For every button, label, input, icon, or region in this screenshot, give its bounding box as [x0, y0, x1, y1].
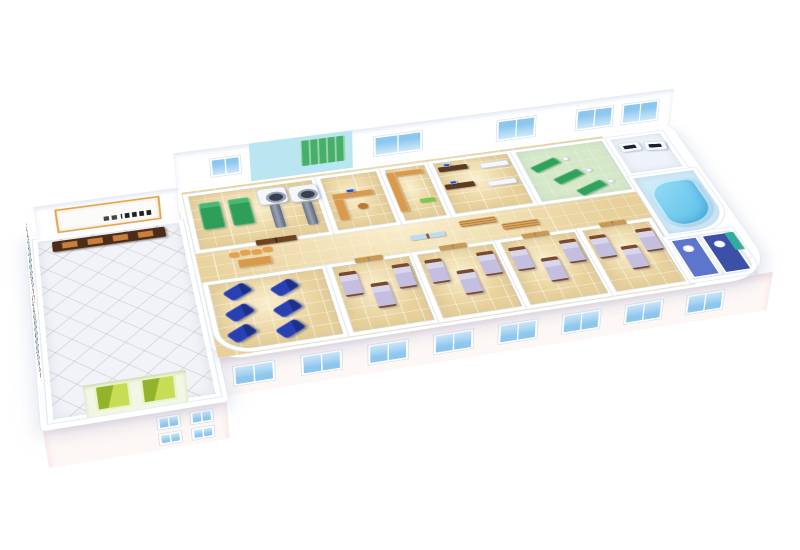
white-bench	[486, 177, 518, 186]
ward-door	[521, 231, 550, 239]
curved-pool	[642, 176, 723, 228]
reception-sign-logo-mark	[111, 215, 117, 220]
window	[621, 100, 659, 125]
exercise-table	[552, 168, 584, 185]
room-hydrotherapy	[628, 167, 738, 237]
ct-scanner	[256, 186, 290, 206]
ct-scanner-table	[269, 204, 286, 228]
reception-desk-panel	[61, 240, 78, 248]
staff-figure	[561, 156, 570, 161]
medical-device	[617, 141, 643, 152]
glass-door	[410, 231, 446, 241]
green-mat	[419, 197, 436, 203]
medical-device	[643, 141, 668, 151]
computer-monitor	[442, 163, 451, 167]
computer-monitor	[345, 188, 355, 193]
rehab-back-wall	[249, 130, 353, 181]
facade-window	[624, 299, 663, 324]
waiting-chair	[251, 249, 262, 255]
ct-scanner	[287, 183, 321, 202]
reception-sign-logo-mark	[103, 216, 109, 221]
facade-window	[434, 329, 474, 354]
waiting-chair	[240, 249, 250, 255]
office-desk	[331, 189, 374, 200]
room-pharmacy	[379, 162, 452, 225]
exercise-table	[576, 179, 609, 196]
north-wall	[173, 89, 674, 192]
ward-door	[438, 242, 467, 251]
facade-window	[368, 339, 408, 365]
reception-desk-panel	[112, 233, 129, 241]
facade-window	[685, 290, 724, 315]
wood-bench	[501, 219, 540, 230]
building-plan	[29, 127, 797, 426]
green-treatment-bed	[198, 201, 226, 230]
staff-figure	[606, 179, 615, 184]
ct-scanner-table	[301, 201, 319, 225]
window	[374, 131, 422, 157]
perspective-wrapper	[0, 0, 800, 550]
reception-sign	[54, 196, 162, 234]
white-bench	[479, 160, 510, 169]
room-rehab-gym	[510, 138, 638, 205]
toilet	[683, 246, 694, 252]
floorplan-render	[0, 0, 800, 550]
facade-window	[192, 425, 215, 440]
double-door	[255, 235, 297, 246]
facade-window	[233, 360, 275, 386]
elevator-door	[140, 374, 178, 405]
teal-cabinet	[724, 232, 744, 250]
room-equipment	[605, 130, 689, 176]
facade-window	[159, 431, 183, 446]
reception-desk	[52, 227, 166, 253]
window	[496, 116, 536, 142]
facade-window	[562, 309, 602, 334]
office-desk-return	[333, 199, 350, 221]
office-chair	[357, 202, 369, 209]
waiting-chair	[229, 252, 239, 258]
consult-desk	[438, 164, 469, 173]
reception-sign-logo	[121, 210, 152, 219]
exercise-table	[529, 157, 561, 173]
room-office	[315, 168, 402, 234]
facade-window	[498, 319, 538, 344]
facade-window	[157, 414, 181, 430]
room-consultation	[427, 151, 539, 218]
green-treatment-bed	[227, 197, 256, 226]
waiting-chair	[262, 246, 273, 252]
wood-bench	[458, 216, 497, 227]
consult-desk	[444, 181, 475, 190]
window	[210, 155, 241, 177]
window	[575, 106, 613, 131]
pharmacy-counter-top	[394, 168, 424, 177]
reception-wall	[33, 188, 180, 239]
reception-desk-panel	[137, 230, 154, 238]
hospital-bed	[634, 227, 664, 252]
reception-desk-panel	[87, 237, 104, 245]
hospital-bed	[588, 234, 617, 259]
staff-figure	[584, 168, 593, 173]
facade-window	[301, 350, 342, 376]
toilet	[714, 241, 725, 247]
ward-door	[598, 219, 627, 227]
facade-window	[190, 409, 213, 425]
computer-monitor	[449, 180, 458, 184]
pharmacy-counter	[385, 172, 410, 212]
wall-bars-panel	[300, 135, 345, 166]
elevator-door	[93, 381, 132, 412]
